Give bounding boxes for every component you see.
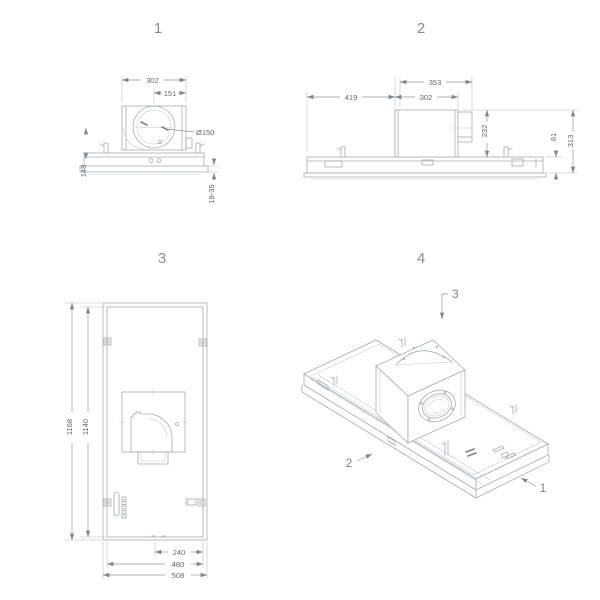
view-side-elevation: 2: [304, 20, 578, 180]
dim-side-total-height: 313: [566, 135, 575, 148]
dim-front-width: 302: [146, 76, 159, 85]
callout-frame: 1: [540, 481, 547, 495]
dim-side-body-height: 81: [549, 133, 558, 141]
dim-plan-outer-length: 1168: [65, 419, 74, 435]
dim-front-half-width: 151: [164, 89, 177, 98]
dim-front-duct-diameter: Ø150: [196, 128, 214, 137]
dim-front-height: 148: [79, 165, 88, 178]
view-side-title: 2: [417, 20, 425, 37]
view-plan: 3: [64, 250, 207, 580]
view-front-elevation: 1: [79, 20, 218, 204]
dim-plan-inner-length: 1140: [81, 419, 90, 435]
callout-motor-box: 3: [452, 287, 459, 301]
dim-front-recess: 18-35: [207, 184, 216, 203]
side-bracket-right: [504, 147, 512, 157]
front-motor-box: [122, 106, 192, 150]
dim-side-left-offset: 419: [345, 93, 358, 102]
view-front-title: 1: [154, 20, 162, 37]
dim-plan-outer-width: 508: [172, 571, 185, 580]
dim-side-motor-height: 232: [480, 125, 489, 138]
dim-side-motor-outlet-width: 353: [429, 78, 442, 87]
view-isometric: 4: [302, 250, 549, 498]
front-bracket-left: [100, 143, 108, 153]
dim-side-motor-width: 302: [420, 93, 433, 102]
technical-drawing-sheet: 1: [0, 0, 600, 600]
drawing-canvas: 1: [0, 0, 600, 600]
view-plan-title: 3: [158, 250, 166, 267]
dim-plan-half-width-offset: 240: [173, 548, 186, 557]
side-bracket-left: [337, 147, 345, 157]
dim-plan-inner-width: 480: [172, 560, 185, 569]
side-motor-box: [395, 110, 474, 157]
front-bracket-right: [196, 143, 204, 153]
view-iso-title: 4: [417, 250, 425, 267]
callout-panel: 2: [346, 456, 353, 470]
